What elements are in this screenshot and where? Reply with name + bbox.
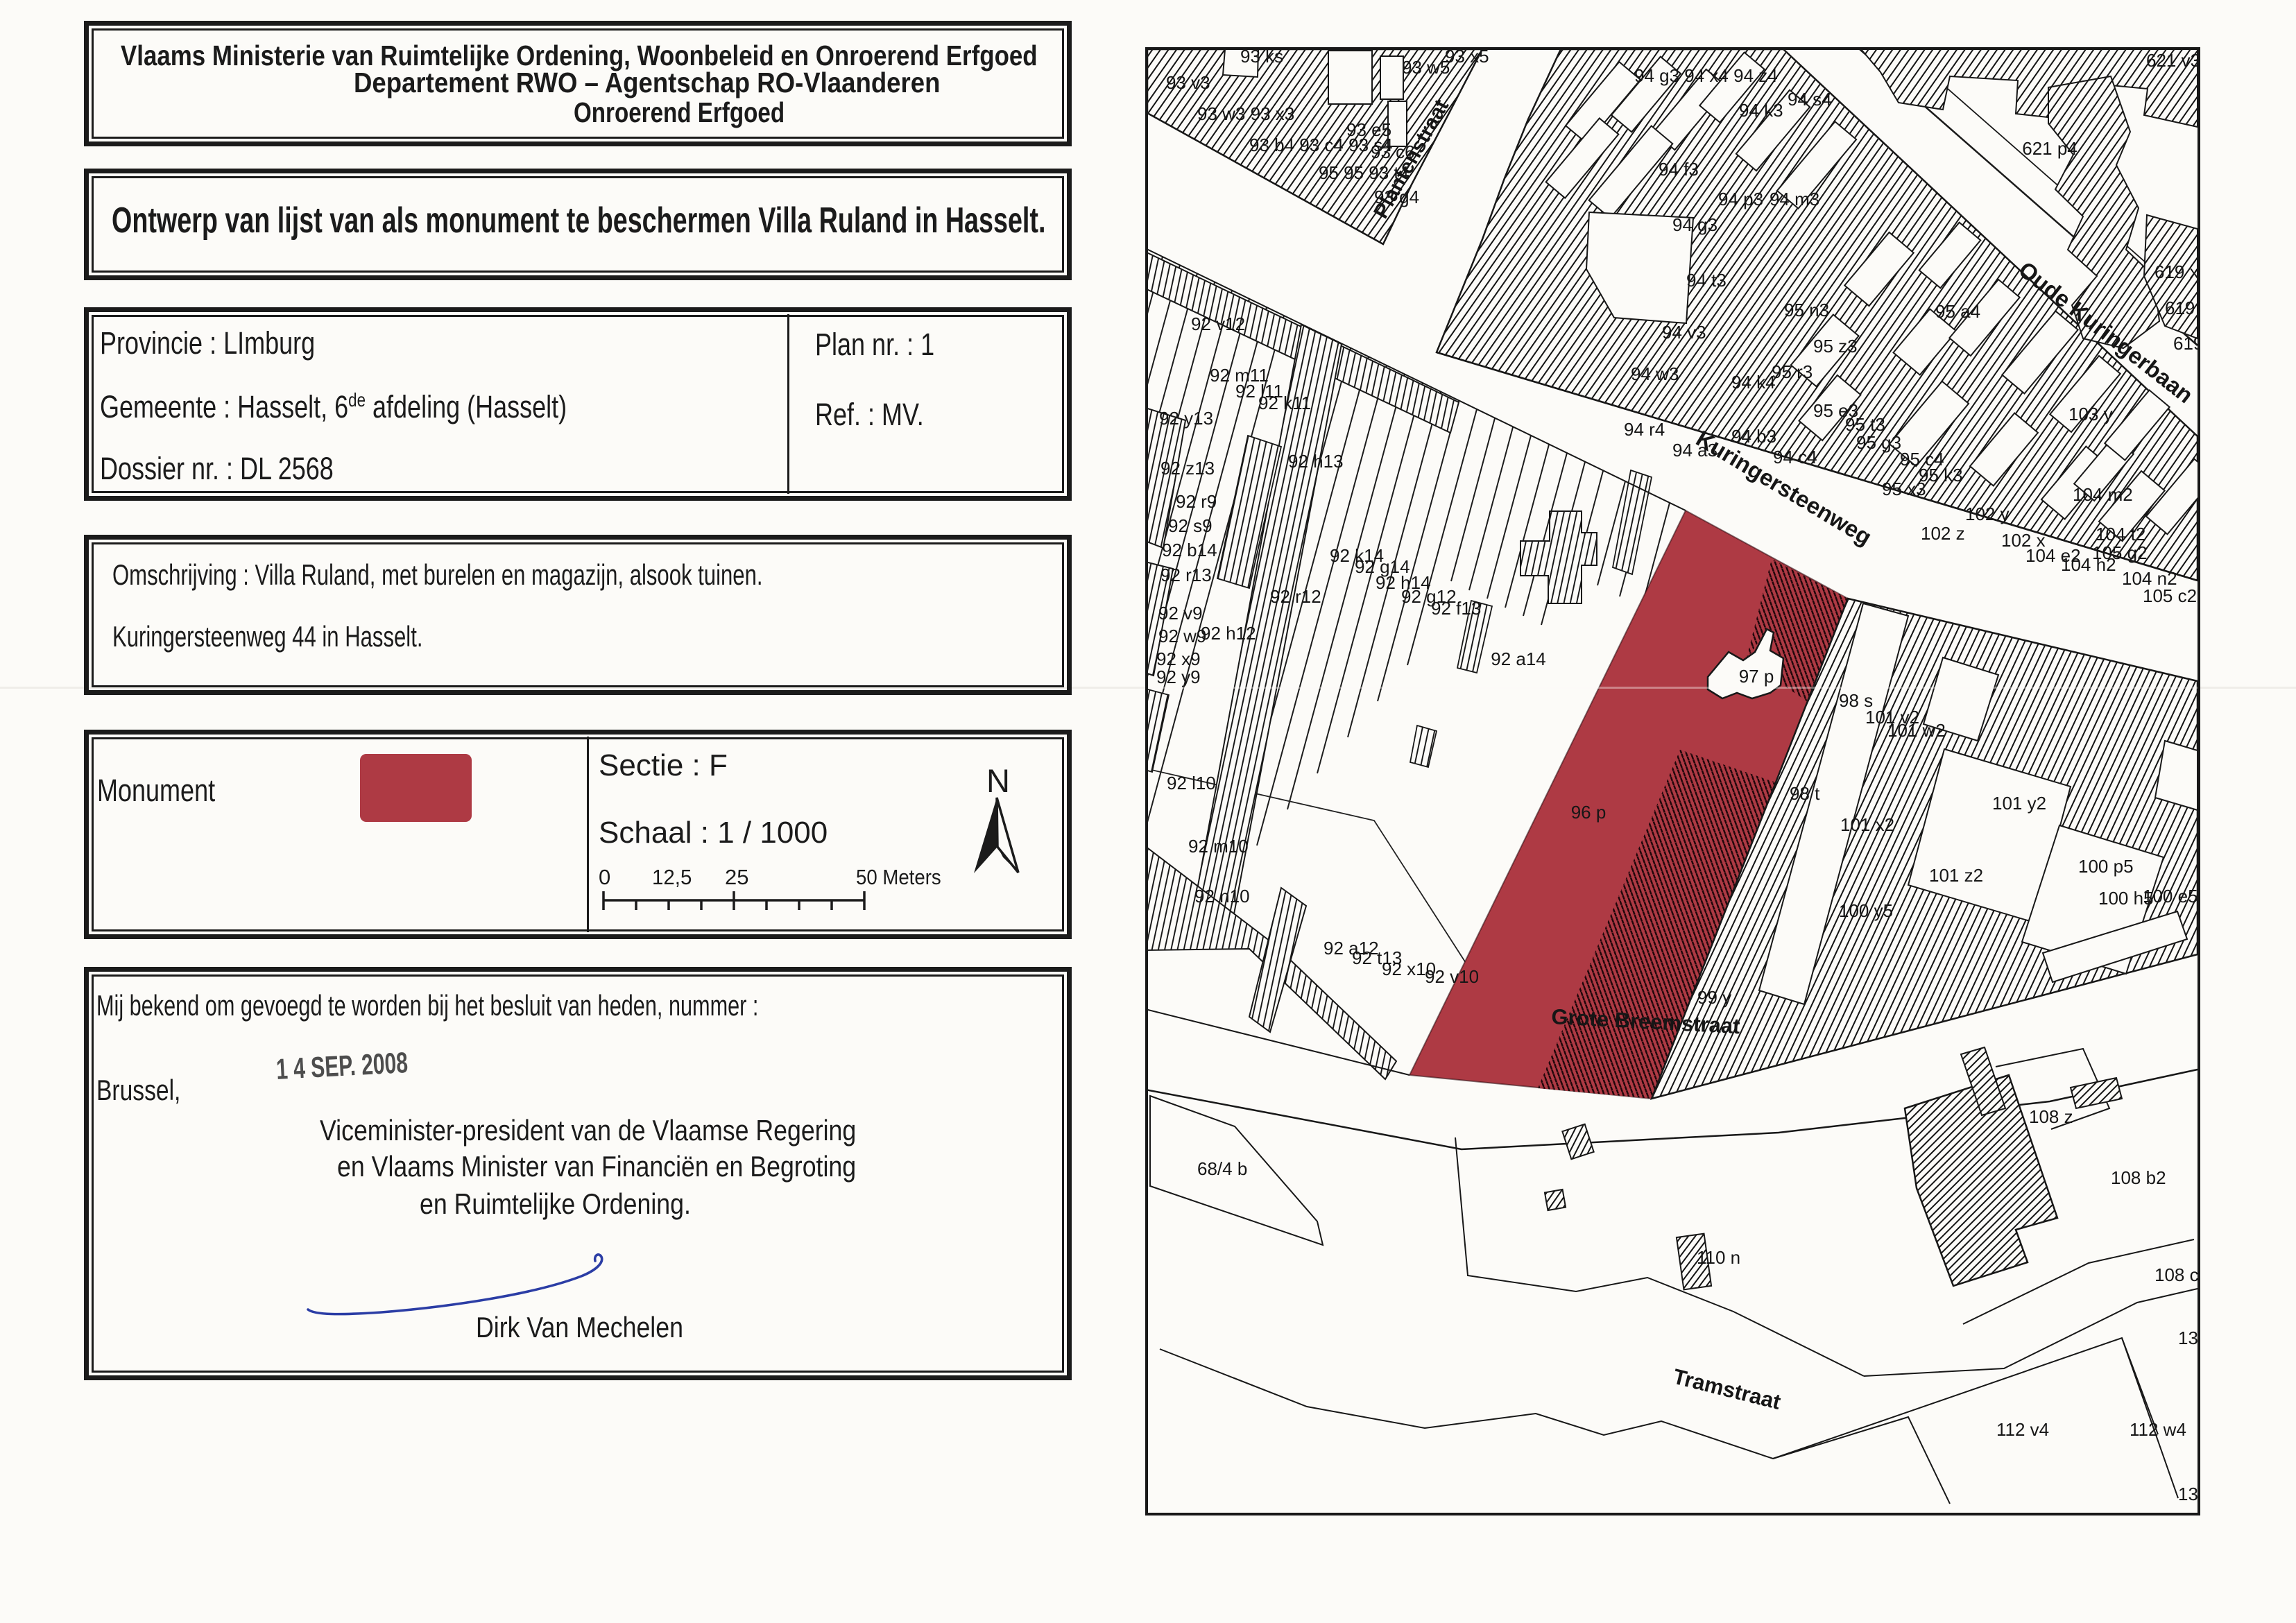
svg-text:92 r12: 92 r12 — [1270, 586, 1321, 607]
svg-text:104 m2: 104 m2 — [2073, 484, 2133, 505]
svg-text:94 r4: 94 r4 — [1624, 419, 1665, 440]
svg-text:93 ks: 93 ks — [1240, 47, 1283, 67]
svg-text:N: N — [986, 762, 1010, 799]
svg-text:99 y: 99 y — [1697, 987, 1731, 1008]
svg-text:92 r13: 92 r13 — [1160, 565, 1212, 585]
svg-text:94 f3: 94 f3 — [1659, 159, 1699, 180]
svg-text:93 g4: 93 g4 — [1374, 187, 1419, 207]
svg-text:95 r3: 95 r3 — [1772, 361, 1813, 382]
svg-text:101 y2: 101 y2 — [1992, 793, 2046, 814]
svg-text:94 c4: 94 c4 — [1773, 447, 1817, 467]
svg-text:92 m10: 92 m10 — [1188, 836, 1249, 857]
svg-text:105 c2: 105 c2 — [2143, 585, 2197, 606]
svg-text:102 z: 102 z — [1921, 523, 1965, 544]
svg-text:94 a3: 94 a3 — [1672, 440, 1717, 461]
svg-text:95 x3: 95 x3 — [1882, 479, 1926, 499]
svg-text:92 w9: 92 w9 — [1158, 626, 1206, 646]
svg-text:92 a14: 92 a14 — [1491, 649, 1546, 669]
svg-text:619 k6: 619 k6 — [2165, 298, 2200, 318]
svg-text:95 g3: 95 g3 — [1856, 432, 1901, 453]
svg-text:92 s9: 92 s9 — [1168, 515, 1213, 536]
svg-text:100 y5: 100 y5 — [1839, 900, 1893, 921]
svg-text:94 k3: 94 k3 — [1739, 100, 1783, 121]
svg-text:94 p3: 94 p3 — [1718, 189, 1763, 209]
svg-text:133 k2: 133 k2 — [2178, 1328, 2200, 1348]
svg-text:94 b3: 94 b3 — [1731, 426, 1776, 447]
svg-text:96 p: 96 p — [1571, 802, 1607, 823]
svg-text:619 x8: 619 x8 — [2154, 261, 2200, 282]
svg-text:101 w2: 101 w2 — [1887, 720, 1946, 741]
svg-text:68/4 b: 68/4 b — [1197, 1158, 1247, 1179]
svg-text:97 p: 97 p — [1739, 666, 1774, 687]
svg-text:92 l10: 92 l10 — [1167, 773, 1216, 793]
svg-text:92 z13: 92 z13 — [1160, 458, 1215, 479]
svg-text:92 v12: 92 v12 — [1191, 314, 1245, 334]
svg-text:93 v3: 93 v3 — [1166, 72, 1210, 93]
svg-text:112 w4: 112 w4 — [2130, 1419, 2186, 1440]
svg-text:92 r9: 92 r9 — [1176, 491, 1217, 512]
svg-text:92 v9: 92 v9 — [1158, 603, 1203, 624]
svg-text:621 v3: 621 v3 — [2146, 50, 2200, 71]
svg-text:92 h12: 92 h12 — [1201, 623, 1256, 644]
svg-text:94 g3: 94 g3 — [1672, 214, 1717, 235]
svg-text:92 y9: 92 y9 — [1156, 667, 1201, 687]
svg-text:94 k4: 94 k4 — [1731, 372, 1776, 393]
svg-text:94 t3: 94 t3 — [1686, 270, 1727, 291]
svg-text:619 h6: 619 h6 — [2173, 333, 2200, 354]
svg-text:101 z2: 101 z2 — [1929, 865, 1983, 886]
svg-text:98 t: 98 t — [1790, 783, 1820, 804]
svg-text:108 c2: 108 c2 — [2154, 1264, 2200, 1285]
svg-text:94 v3: 94 v3 — [1662, 322, 1706, 343]
svg-text:93 c6: 93 c6 — [1371, 141, 1415, 162]
svg-text:92 y13: 92 y13 — [1159, 408, 1213, 429]
svg-text:621 p4: 621 p4 — [2022, 138, 2077, 159]
svg-text:95 a4: 95 a4 — [1935, 301, 1980, 322]
svg-text:101 x2: 101 x2 — [1840, 814, 1894, 835]
svg-text:100 e5: 100 e5 — [2143, 886, 2198, 907]
svg-text:95 95 93 t4: 95 95 93 t4 — [1319, 162, 1409, 183]
svg-text:92 b14: 92 b14 — [1162, 540, 1217, 560]
svg-text:94 s4: 94 s4 — [1788, 89, 1832, 110]
svg-text:95 z3: 95 z3 — [1813, 336, 1858, 357]
svg-text:104 t2: 104 t2 — [2096, 524, 2145, 544]
svg-text:93 w5: 93 w5 — [1402, 57, 1450, 78]
svg-text:133 k2: 133 k2 — [2178, 1484, 2200, 1504]
svg-text:93 e5: 93 e5 — [1346, 119, 1391, 140]
svg-text:95 n3: 95 n3 — [1784, 300, 1829, 320]
svg-text:92 k11: 92 k11 — [1258, 393, 1311, 413]
svg-text:110 n: 110 n — [1697, 1247, 1740, 1268]
svg-text:108 z: 108 z — [2029, 1106, 2073, 1127]
svg-text:102 y: 102 y — [1965, 504, 2010, 524]
svg-text:94 g3 94 x4 94 z4: 94 g3 94 x4 94 z4 — [1634, 65, 1778, 86]
svg-text:94 w3: 94 w3 — [1631, 363, 1679, 384]
svg-text:92 f13: 92 f13 — [1431, 598, 1481, 619]
svg-text:92 v10: 92 v10 — [1425, 966, 1479, 987]
svg-text:92 h13: 92 h13 — [1288, 451, 1344, 472]
svg-text:93 w3 93 x3: 93 w3 93 x3 — [1197, 103, 1294, 124]
svg-text:100 p5: 100 p5 — [2078, 856, 2134, 877]
svg-text:93 x5: 93 x5 — [1445, 47, 1489, 67]
svg-text:92 n10: 92 n10 — [1194, 886, 1250, 907]
svg-text:94 m3: 94 m3 — [1770, 189, 1819, 209]
svg-text:112 v4: 112 v4 — [1996, 1419, 2049, 1440]
svg-text:108 b2: 108 b2 — [2111, 1167, 2166, 1188]
svg-text:105 g2: 105 g2 — [2092, 542, 2148, 563]
svg-text:103 y: 103 y — [2068, 404, 2113, 424]
